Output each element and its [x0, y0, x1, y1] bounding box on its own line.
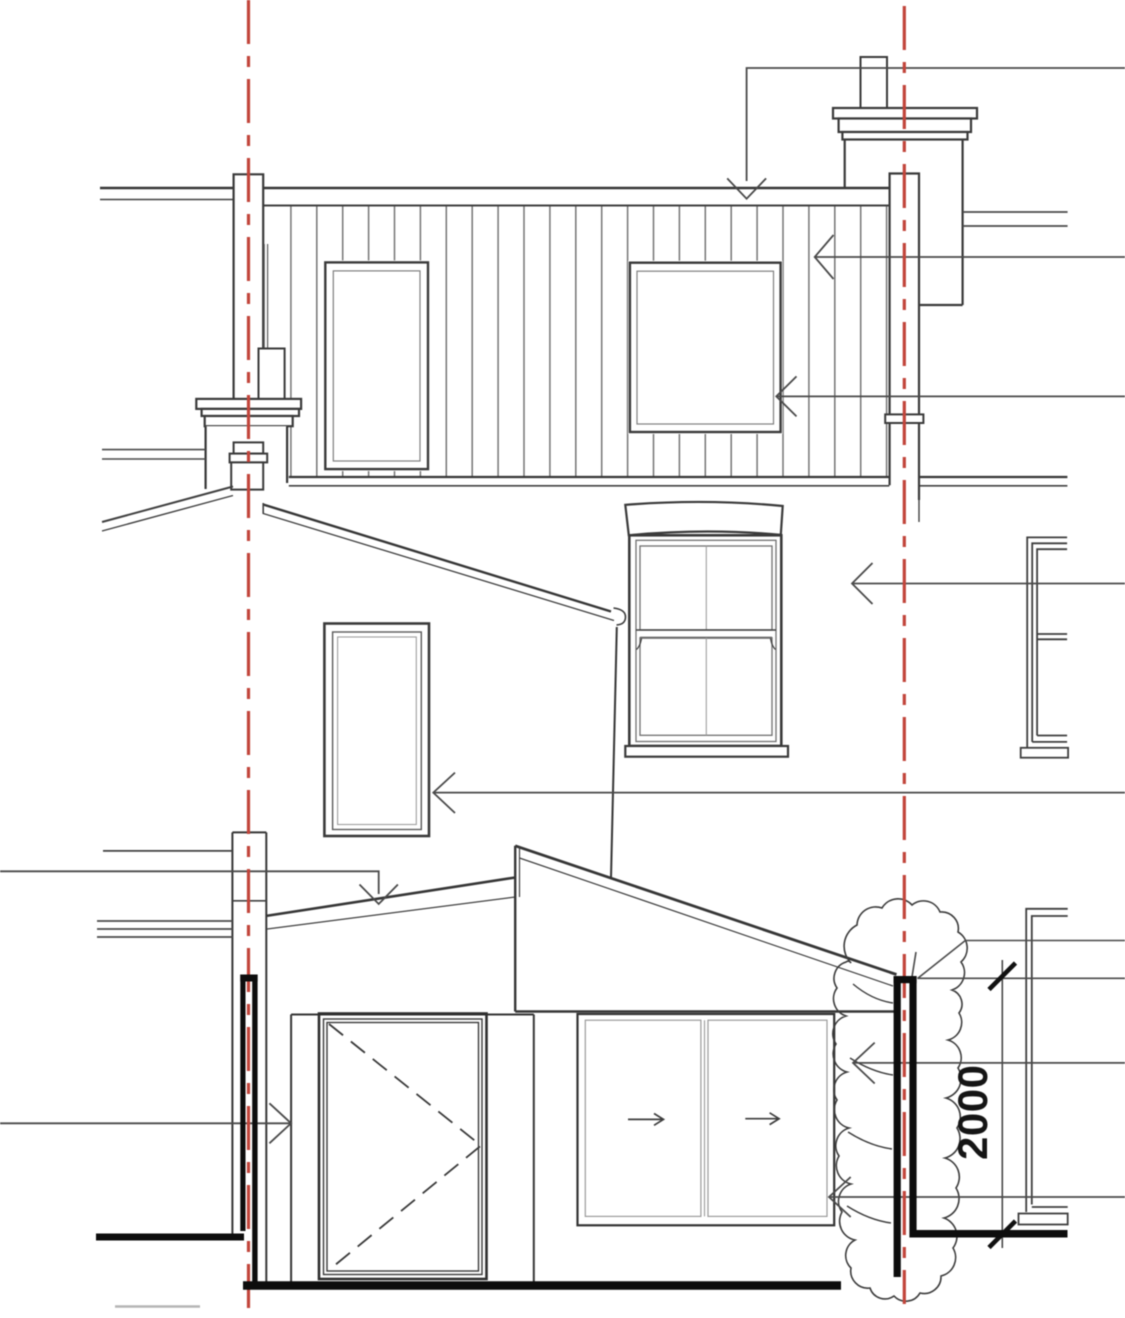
svg-text:2000: 2000 [949, 1065, 996, 1160]
